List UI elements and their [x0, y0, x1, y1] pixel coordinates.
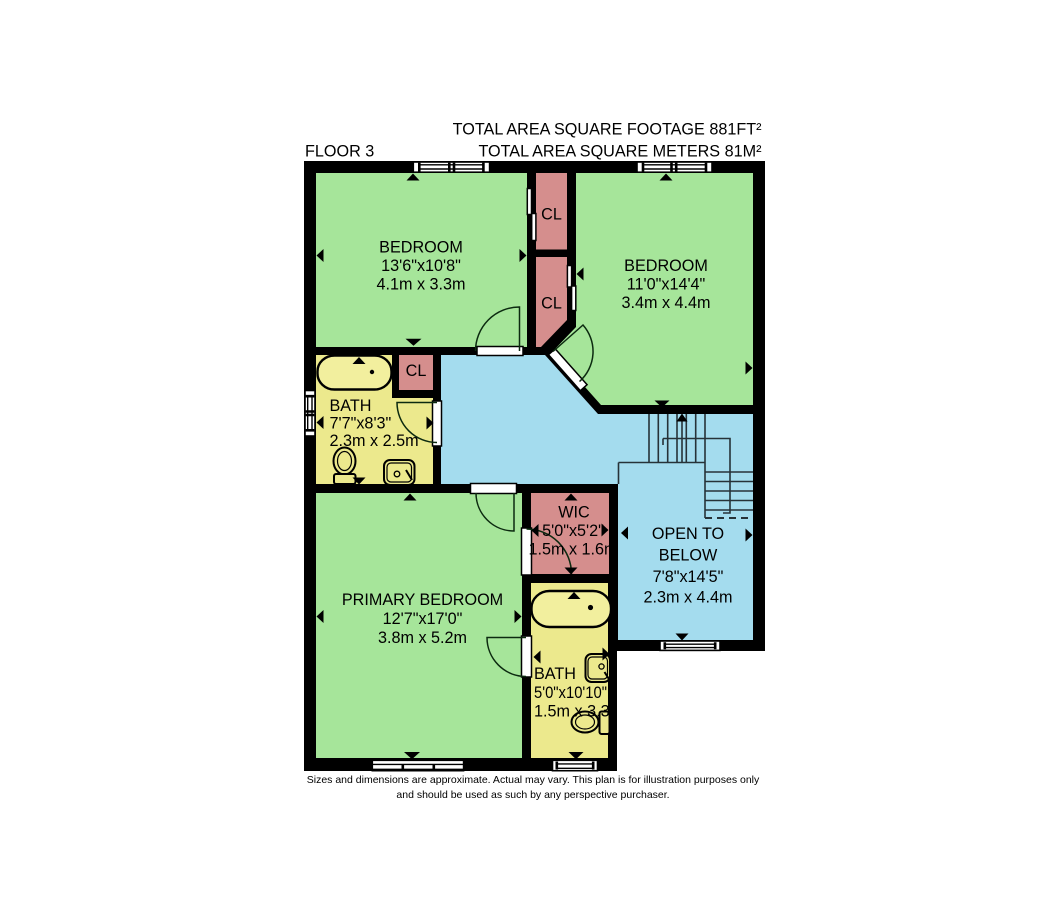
svg-text:BELOW: BELOW [659, 547, 718, 565]
svg-text:and should be used as such by: and should be used as such by any perspe… [396, 789, 669, 801]
svg-text:2.3m x 4.4m: 2.3m x 4.4m [643, 589, 732, 607]
svg-text:7'8"x14'5": 7'8"x14'5" [653, 568, 724, 586]
svg-text:BEDROOM: BEDROOM [624, 257, 708, 275]
svg-text:Sizes and dimensions are appro: Sizes and dimensions are approximate. Ac… [307, 774, 760, 786]
svg-text:BATH: BATH [330, 397, 372, 415]
svg-text:FLOOR 3: FLOOR 3 [305, 143, 374, 161]
svg-text:TOTAL AREA SQUARE METERS 81M²: TOTAL AREA SQUARE METERS 81M² [478, 143, 762, 161]
svg-text:13'6"x10'8": 13'6"x10'8" [381, 257, 461, 275]
svg-text:3.4m x 4.4m: 3.4m x 4.4m [621, 294, 710, 312]
svg-text:4.1m x 3.3m: 4.1m x 3.3m [376, 276, 465, 294]
svg-text:CL: CL [406, 362, 427, 380]
svg-text:7'7"x8'3": 7'7"x8'3" [330, 415, 392, 433]
svg-text:WIC: WIC [558, 504, 590, 522]
svg-text:CL: CL [541, 295, 562, 313]
svg-text:PRIMARY BEDROOM: PRIMARY BEDROOM [342, 591, 503, 609]
svg-text:CL: CL [541, 206, 562, 224]
svg-text:BEDROOM: BEDROOM [379, 239, 463, 257]
svg-text:3.8m x 5.2m: 3.8m x 5.2m [378, 629, 467, 647]
svg-text:BATH: BATH [534, 665, 576, 683]
svg-text:5'0"x5'2": 5'0"x5'2" [542, 522, 604, 540]
svg-text:1.5m x 1.6m: 1.5m x 1.6m [528, 541, 617, 559]
svg-text:12'7"x17'0": 12'7"x17'0" [383, 610, 463, 628]
svg-text:11'0"x14'4": 11'0"x14'4" [627, 276, 706, 294]
svg-text:2.3m x 2.5m: 2.3m x 2.5m [330, 432, 419, 450]
svg-text:OPEN TO: OPEN TO [652, 525, 724, 543]
svg-text:TOTAL AREA SQUARE FOOTAGE 881F: TOTAL AREA SQUARE FOOTAGE 881FT² [453, 121, 762, 139]
svg-text:5'0"x10'10": 5'0"x10'10" [534, 684, 607, 702]
